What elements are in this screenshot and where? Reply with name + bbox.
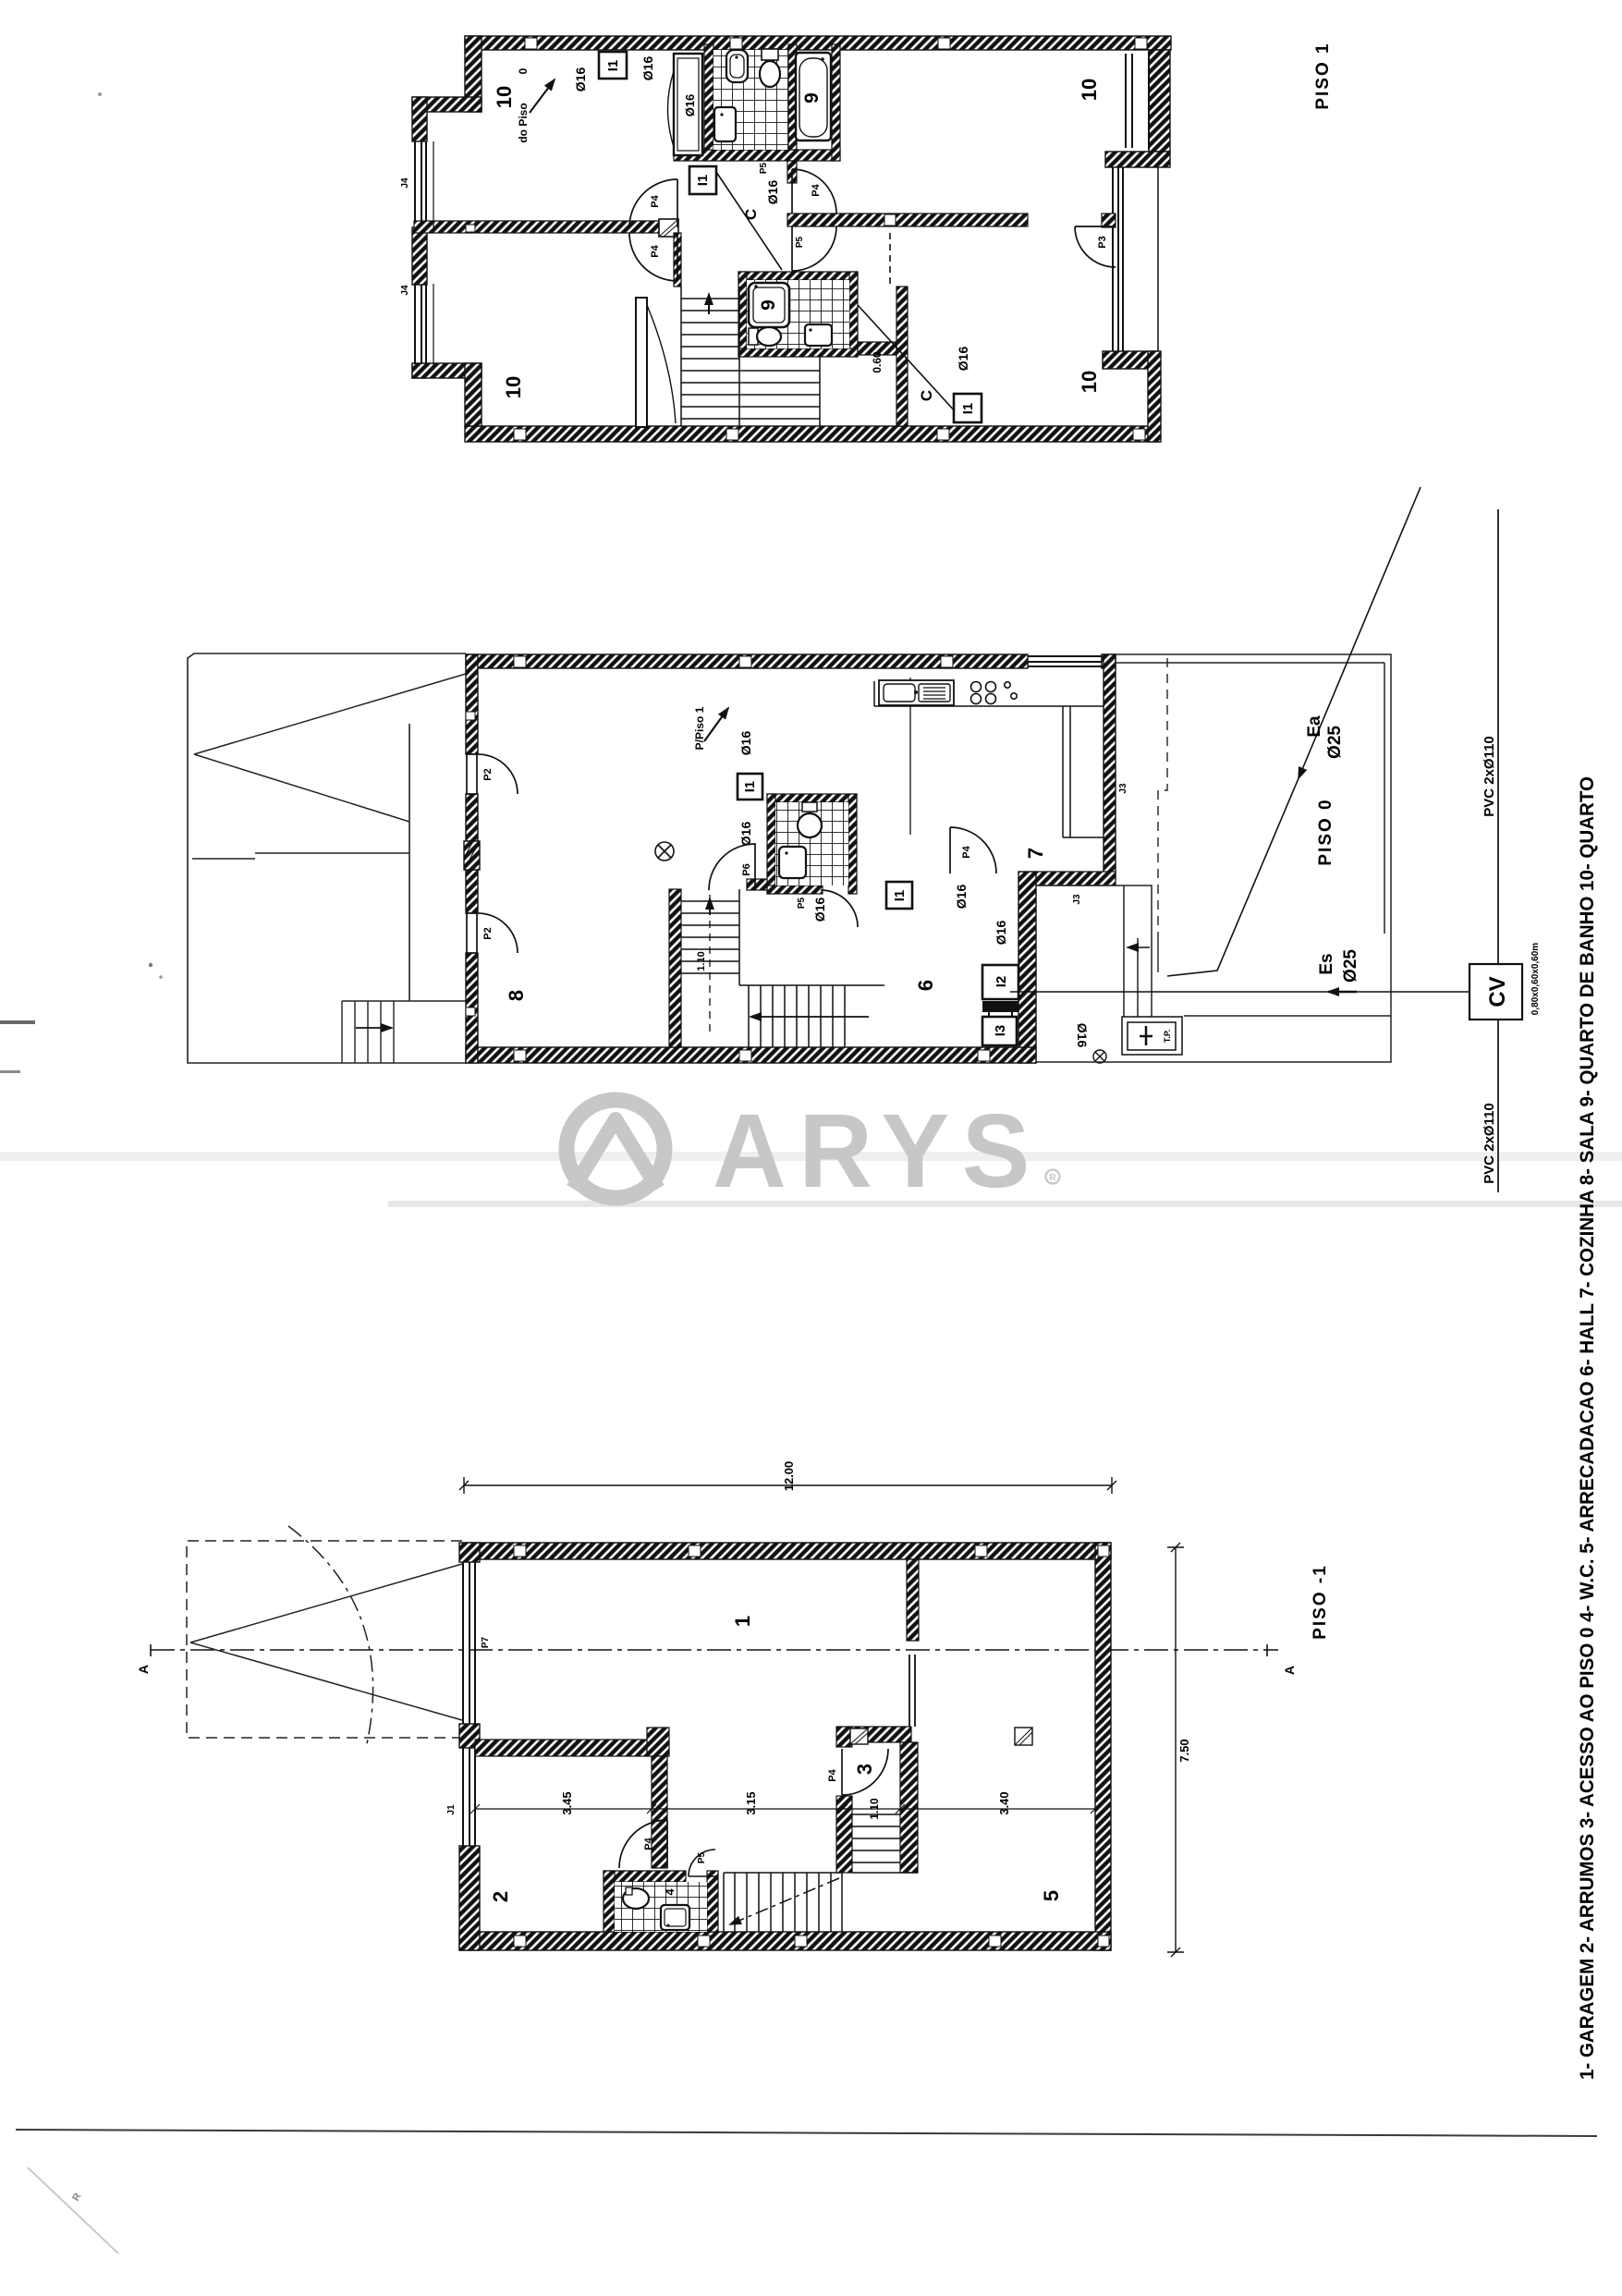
svg-text:Ø16: Ø16 (683, 94, 697, 117)
svg-text:Ø16: Ø16 (812, 898, 827, 922)
svg-text:1: 1 (731, 1616, 754, 1627)
svg-text:1.10: 1.10 (696, 951, 707, 971)
svg-text:5: 5 (1040, 1890, 1063, 1901)
svg-text:7.50: 7.50 (1177, 1739, 1191, 1762)
svg-text:ARYS: ARYS (713, 1093, 1043, 1209)
svg-text:Ø16: Ø16 (573, 67, 588, 92)
svg-text:J4: J4 (400, 285, 410, 296)
svg-text:C: C (742, 209, 760, 220)
svg-text:P7: P7 (481, 1636, 491, 1648)
svg-text:PISO 0: PISO 0 (1316, 798, 1335, 865)
svg-text:8: 8 (505, 990, 528, 1001)
svg-text:9: 9 (758, 299, 779, 311)
svg-text:Ø16: Ø16 (640, 56, 655, 81)
svg-text:Ø16: Ø16 (956, 347, 970, 372)
svg-text:1- GARAGEM 2- ARRUMOS 3- ACESS: 1- GARAGEM 2- ARRUMOS 3- ACESSO AO PISO … (1577, 776, 1598, 2080)
svg-text:P6: P6 (741, 863, 752, 875)
svg-text:P4: P4 (650, 194, 661, 207)
svg-text:P2: P2 (482, 927, 494, 939)
svg-text:1.10: 1.10 (868, 1798, 881, 1820)
svg-text:P5: P5 (759, 162, 769, 174)
svg-text:Ø25: Ø25 (1341, 949, 1360, 983)
svg-text:J3: J3 (1072, 894, 1082, 905)
svg-text:J1: J1 (446, 1804, 457, 1815)
svg-text:PISO -1: PISO -1 (1311, 1564, 1330, 1640)
svg-text:0,80x0,60x0,60m: 0,80x0,60x0,60m (1531, 943, 1541, 1016)
svg-text:P5: P5 (797, 897, 807, 909)
svg-text:J3: J3 (1118, 783, 1128, 794)
svg-text:CV: CV (1485, 976, 1510, 1007)
svg-text:J4: J4 (400, 177, 410, 189)
svg-text:12.00: 12.00 (782, 1461, 796, 1492)
svg-text:Ø16: Ø16 (738, 822, 753, 847)
svg-text:P/Piso 1: P/Piso 1 (693, 706, 706, 750)
svg-text:Ø16: Ø16 (954, 885, 969, 910)
svg-text:10: 10 (1078, 79, 1101, 101)
svg-text:P3: P3 (1097, 236, 1108, 248)
svg-text:10: 10 (1078, 371, 1101, 393)
svg-text:P4: P4 (643, 1837, 654, 1850)
svg-text:T.P.: T.P. (1163, 1030, 1172, 1043)
svg-text:I1: I1 (892, 890, 908, 902)
svg-text:R: R (1049, 1173, 1056, 1183)
svg-text:P2: P2 (482, 768, 494, 780)
svg-text:10: 10 (493, 86, 516, 108)
svg-text:3.45: 3.45 (560, 1791, 574, 1814)
svg-text:10: 10 (502, 376, 525, 398)
svg-text:0: 0 (517, 67, 530, 74)
svg-text:PVC 2xØ110: PVC 2xØ110 (1482, 1103, 1497, 1184)
svg-text:4: 4 (663, 1888, 677, 1896)
svg-text:do Piso: do Piso (517, 103, 530, 142)
svg-text:3.40: 3.40 (997, 1791, 1011, 1814)
svg-text:3.15: 3.15 (744, 1791, 758, 1814)
svg-text:I2: I2 (994, 976, 1009, 988)
svg-text:PISO 1: PISO 1 (1313, 42, 1333, 109)
svg-text:A: A (136, 1665, 151, 1674)
svg-text:2: 2 (489, 1891, 512, 1902)
svg-text:P5: P5 (795, 236, 805, 248)
svg-text:I1: I1 (695, 175, 711, 187)
svg-text:Ø16: Ø16 (994, 921, 1008, 946)
svg-text:P4: P4 (811, 183, 822, 196)
svg-text:P4: P4 (827, 1768, 838, 1781)
svg-text:Ø16: Ø16 (738, 731, 753, 756)
svg-text:6: 6 (914, 980, 937, 991)
svg-text:P5: P5 (697, 1851, 707, 1863)
svg-text:P4: P4 (650, 244, 661, 257)
svg-text:I3: I3 (993, 1025, 1008, 1037)
svg-text:Ea: Ea (1305, 715, 1324, 738)
svg-text:9: 9 (801, 92, 823, 104)
svg-text:I1: I1 (960, 403, 976, 415)
svg-text:Ø25: Ø25 (1325, 726, 1345, 759)
svg-text:0.60: 0.60 (871, 351, 884, 373)
svg-text:Ø16: Ø16 (765, 180, 780, 205)
svg-text:A: A (1282, 1666, 1297, 1675)
svg-text:I1: I1 (742, 781, 758, 793)
svg-text:P4: P4 (961, 845, 972, 858)
svg-text:Ø16: Ø16 (1075, 1023, 1090, 1048)
svg-text:C: C (918, 390, 935, 401)
svg-text:7: 7 (1024, 848, 1047, 859)
svg-text:Es: Es (1317, 953, 1336, 974)
svg-text:I1: I1 (605, 60, 621, 72)
svg-text:PVC 2xØ110: PVC 2xØ110 (1482, 736, 1497, 817)
svg-text:3: 3 (853, 1764, 876, 1775)
